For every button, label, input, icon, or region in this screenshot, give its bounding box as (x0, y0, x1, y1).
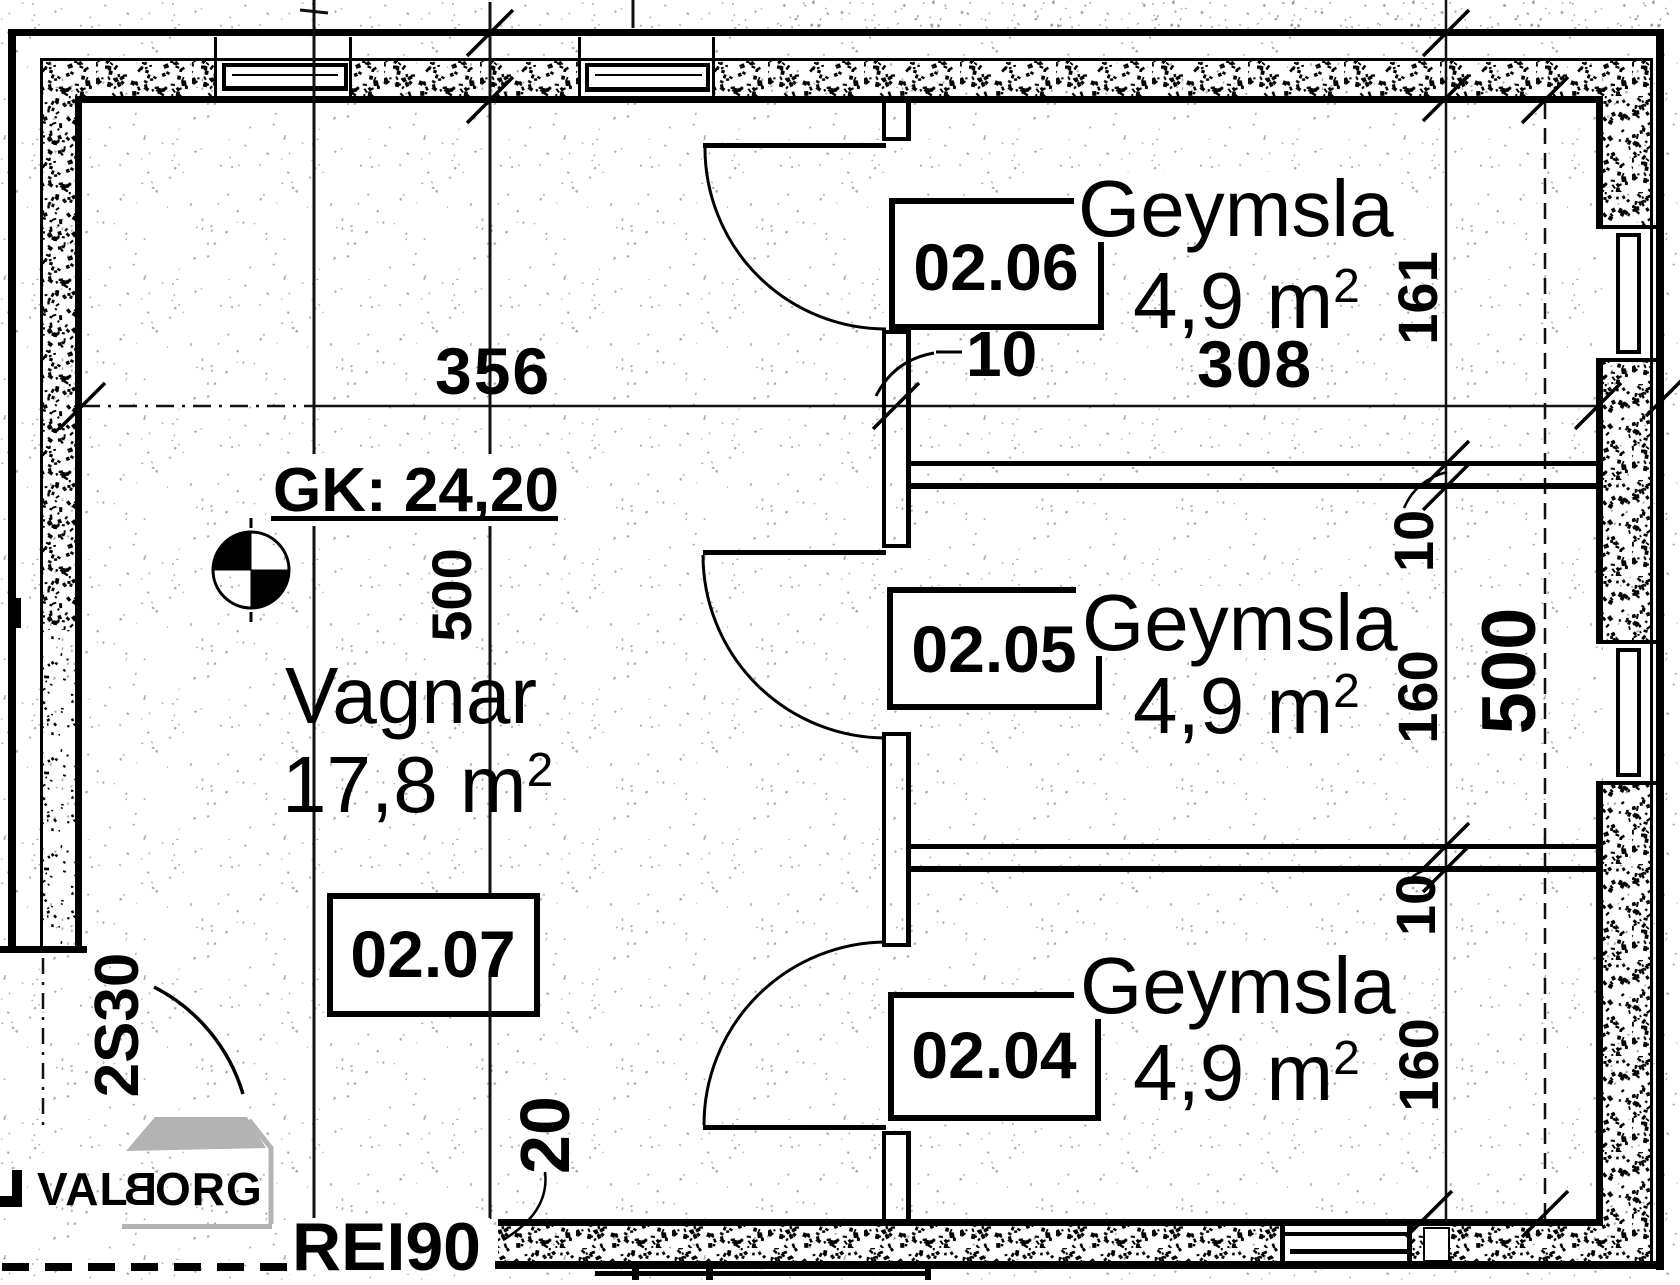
svg-text:GK: 24,20: GK: 24,20 (273, 456, 559, 525)
svg-text:Geymsla: Geymsla (1078, 164, 1394, 253)
svg-text:REI90: REI90 (292, 1209, 481, 1280)
svg-text:4,9 m2: 4,9 m2 (1133, 256, 1360, 345)
svg-text:10: 10 (1382, 510, 1445, 572)
svg-text:Geymsla: Geymsla (1080, 941, 1396, 1030)
svg-text:161: 161 (1386, 251, 1449, 344)
svg-text:VAL: VAL (37, 1163, 129, 1215)
svg-text:4,9 m2: 4,9 m2 (1133, 1028, 1360, 1117)
svg-text:02.06: 02.06 (913, 230, 1078, 304)
svg-text:Geymsla: Geymsla (1082, 578, 1398, 667)
svg-text:356: 356 (435, 334, 551, 408)
svg-text:4,9 m2: 4,9 m2 (1133, 661, 1360, 750)
svg-text:500: 500 (1467, 608, 1552, 735)
svg-text:ORG: ORG (155, 1163, 263, 1215)
svg-text:B: B (124, 1163, 157, 1215)
svg-text:160: 160 (1387, 1018, 1450, 1111)
svg-text:Vagnar: Vagnar (285, 651, 537, 740)
svg-text:500: 500 (420, 548, 483, 641)
svg-text:10: 10 (1384, 874, 1447, 936)
svg-text:2S30: 2S30 (83, 953, 152, 1098)
svg-text:20: 20 (506, 1096, 584, 1174)
svg-text:02.05: 02.05 (911, 612, 1076, 686)
svg-text:02.04: 02.04 (911, 1018, 1076, 1092)
svg-text:17,8 m2: 17,8 m2 (282, 740, 553, 829)
